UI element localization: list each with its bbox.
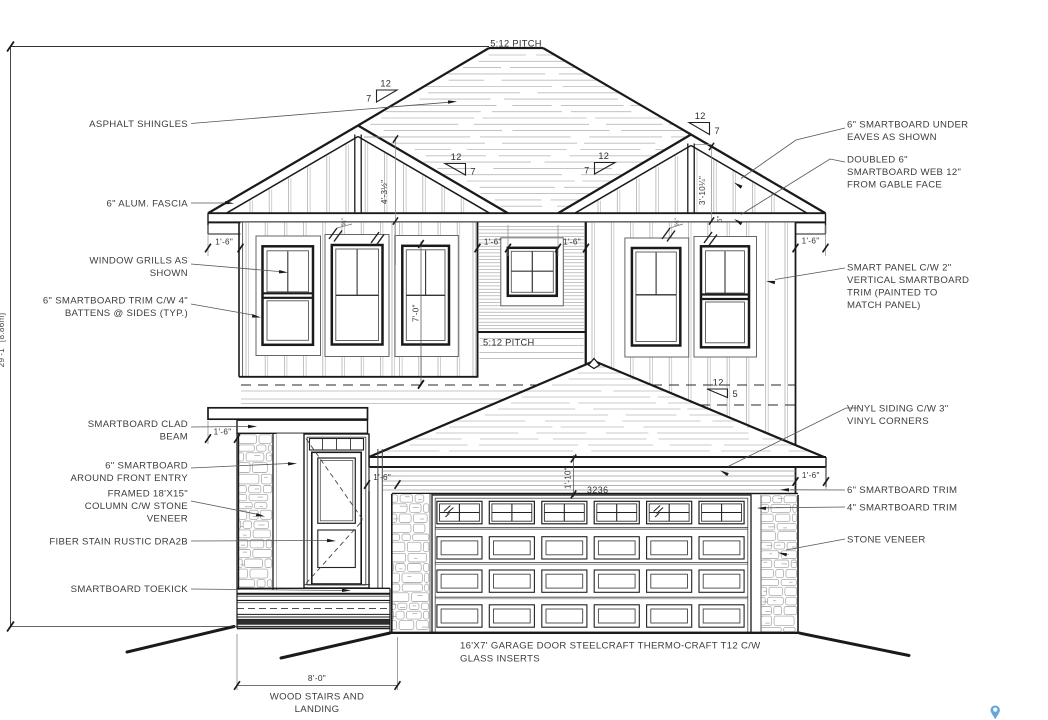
svg-text:VINYL CORNERS: VINYL CORNERS [847, 416, 929, 427]
svg-text:1'-6": 1'-6" [215, 238, 233, 247]
svg-text:5:12 PITCH: 5:12 PITCH [490, 38, 542, 48]
svg-text:5:12 PITCH: 5:12 PITCH [483, 338, 535, 348]
svg-text:6": 6" [717, 215, 724, 222]
svg-text:MATCH PANEL): MATCH PANEL) [847, 300, 921, 311]
svg-text:3'-10¼": 3'-10¼" [698, 176, 707, 205]
svg-text:7: 7 [366, 94, 371, 104]
svg-text:FRAMED 18'X15": FRAMED 18'X15" [108, 489, 188, 500]
svg-text:1'-6": 1'-6" [484, 238, 502, 247]
svg-text:1'-6": 1'-6" [802, 471, 820, 480]
svg-text:1'-6": 1'-6" [802, 237, 820, 246]
svg-text:8'-0": 8'-0" [308, 673, 326, 683]
svg-text:DOUBLED 6": DOUBLED 6" [847, 155, 908, 166]
svg-text:6" SMARTBOARD TRIM C/W 4": 6" SMARTBOARD TRIM C/W 4" [43, 296, 188, 307]
svg-text:FROM GABLE FACE: FROM GABLE FACE [847, 180, 942, 191]
svg-text:4" SMARTBOARD TRIM: 4" SMARTBOARD TRIM [847, 503, 957, 514]
svg-text:6" SMARTBOARD UNDER: 6" SMARTBOARD UNDER [847, 120, 968, 131]
svg-text:BATTENS @ SIDES (TYP.): BATTENS @ SIDES (TYP.) [65, 308, 188, 319]
svg-text:1'-6": 1'-6" [373, 473, 391, 482]
svg-text:29'-1" [8.86m]: 29'-1" [8.86m] [0, 313, 6, 368]
svg-text:1'-6": 1'-6" [563, 238, 581, 247]
svg-text:WOOD STAIRS AND: WOOD STAIRS AND [270, 692, 364, 703]
svg-text:SHOWN: SHOWN [150, 268, 188, 279]
svg-text:7'-0": 7'-0" [412, 304, 421, 322]
svg-text:LANDING: LANDING [295, 704, 340, 715]
svg-text:WINDOW GRILLS AS: WINDOW GRILLS AS [89, 256, 188, 267]
svg-text:STONE VENEER: STONE VENEER [847, 535, 926, 546]
svg-text:TRIM (PAINTED TO: TRIM (PAINTED TO [847, 288, 938, 299]
svg-text:3236: 3236 [587, 485, 609, 495]
svg-text:COLUMN C/W STONE: COLUMN C/W STONE [85, 501, 188, 512]
svg-text:5: 5 [733, 389, 738, 399]
svg-text:FIBER STAIN RUSTIC DRA2B: FIBER STAIN RUSTIC DRA2B [49, 537, 188, 548]
svg-text:1'-10": 1'-10" [564, 467, 573, 489]
svg-text:6" SMARTBOARD TRIM: 6" SMARTBOARD TRIM [847, 485, 957, 496]
svg-text:6" ALUM. FASCIA: 6" ALUM. FASCIA [107, 199, 189, 210]
svg-text:12: 12 [713, 378, 724, 388]
svg-text:12: 12 [451, 152, 462, 162]
svg-text:BEAM: BEAM [160, 432, 188, 443]
svg-text:12: 12 [380, 79, 391, 89]
svg-text:12: 12 [598, 151, 609, 161]
svg-text:4'-3½": 4'-3½" [380, 180, 389, 204]
svg-text:VENEER: VENEER [147, 514, 188, 525]
svg-text:SMART PANEL C/W 2": SMART PANEL C/W 2" [847, 263, 951, 274]
svg-text:SMARTBOARD TOEKICK: SMARTBOARD TOEKICK [71, 584, 189, 595]
svg-text:12: 12 [695, 111, 706, 121]
svg-text:SMARTBOARD WEB 12": SMARTBOARD WEB 12" [847, 167, 961, 178]
svg-text:⅝": ⅝" [674, 217, 681, 226]
svg-text:VERTICAL SMARTBOARD: VERTICAL SMARTBOARD [847, 275, 969, 286]
svg-text:1'-6": 1'-6" [214, 428, 232, 437]
svg-text:16'X7' GARAGE DOOR STEELCRAFT: 16'X7' GARAGE DOOR STEELCRAFT THERMO-CRA… [460, 641, 761, 652]
svg-text:ASPHALT SHINGLES: ASPHALT SHINGLES [89, 119, 188, 130]
svg-text:7: 7 [715, 126, 720, 136]
svg-text:AROUND FRONT ENTRY: AROUND FRONT ENTRY [70, 473, 188, 484]
svg-text:GLASS INSERTS: GLASS INSERTS [460, 654, 540, 665]
svg-text:⅝": ⅝" [341, 217, 348, 226]
svg-text:6" SMARTBOARD: 6" SMARTBOARD [105, 461, 188, 472]
svg-text:7: 7 [584, 166, 589, 176]
svg-text:EAVES AS SHOWN: EAVES AS SHOWN [847, 132, 937, 143]
svg-text:VINYL SIDING C/W 3": VINYL SIDING C/W 3" [847, 404, 949, 415]
svg-text:SMARTBOARD CLAD: SMARTBOARD CLAD [88, 419, 188, 430]
svg-text:7: 7 [471, 167, 476, 177]
